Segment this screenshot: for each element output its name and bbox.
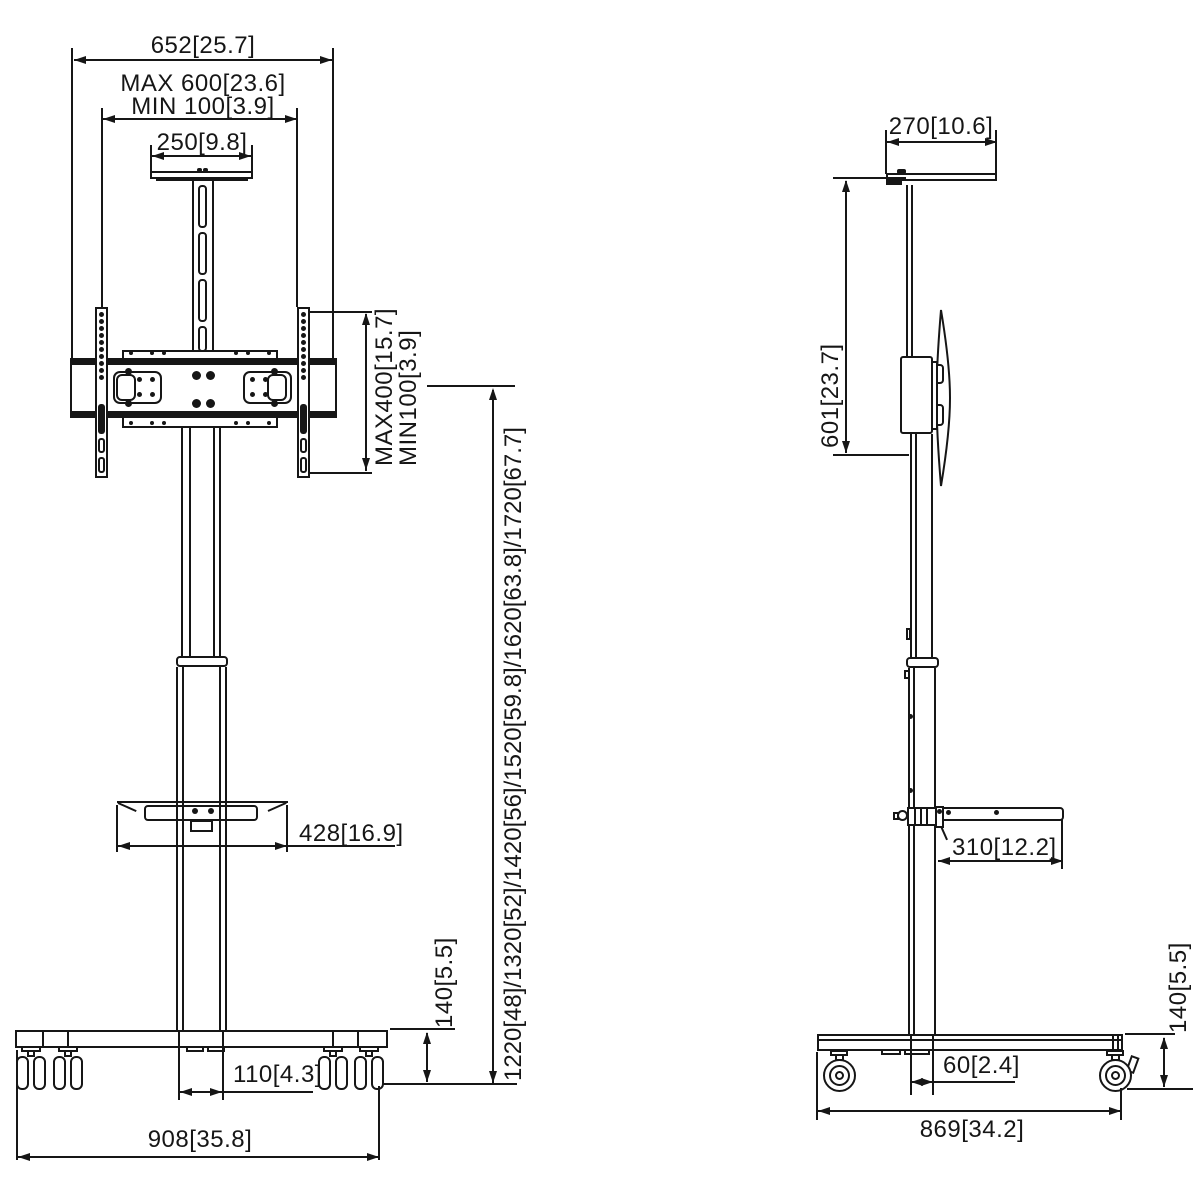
arrowhead-left-icon [74, 56, 86, 64]
column-slot [198, 326, 207, 352]
shelf-clamp-divider [914, 809, 916, 824]
dim-extension-line [1125, 1033, 1175, 1035]
plate-hole [267, 421, 271, 425]
plate-hole [129, 421, 133, 425]
hook-hole [250, 392, 255, 397]
rail-hole [301, 347, 306, 352]
rail-hole [99, 368, 104, 373]
rail-slot-filled [300, 404, 307, 434]
arrowhead-right-icon [1109, 1107, 1121, 1115]
dim-extension-line [427, 385, 515, 387]
arrowhead-right-icon [210, 1088, 222, 1096]
caster-neck [329, 1050, 337, 1057]
plate-corner-hole [125, 400, 132, 407]
dim-line-top-shelf-depth [887, 141, 997, 143]
tv-hook-right [267, 374, 287, 401]
caster-wheel [354, 1056, 367, 1090]
hook-hole [250, 377, 255, 382]
pole-clip [904, 670, 910, 679]
rail-hole [301, 326, 306, 331]
rail-hole [301, 354, 306, 359]
base-side [817, 1034, 1123, 1051]
dim-label-base-width: 908[35.8] [148, 1127, 253, 1153]
rail-hook-side [936, 404, 944, 426]
dim-label-column-width: 110[4.3] [233, 1062, 322, 1088]
rail-hole [99, 319, 104, 324]
arrowhead-right-icon [275, 842, 287, 850]
tv-bracket-side [900, 356, 933, 434]
technical-drawing-canvas: 652[25.7] MAX 600[23.6] MIN 100[3.9] 250… [0, 0, 1200, 1200]
column-pole-line [910, 434, 912, 658]
shelf-clamp-tab [190, 820, 213, 832]
arrowhead-down-icon [362, 458, 370, 470]
rail-hole [301, 361, 306, 366]
plate-hole [234, 351, 238, 355]
arrowhead-left-icon [818, 1107, 830, 1115]
dim-label-base-depth: 869[34.2] [920, 1117, 1025, 1143]
rail-hole [301, 319, 306, 324]
rail-hole [301, 375, 306, 380]
top-shelf-plate [150, 171, 253, 179]
vesa-hole [206, 399, 215, 408]
shelf-top-edge [117, 801, 288, 803]
dim-extension-line [310, 472, 372, 474]
dim-label-base-height: 140[5.5] [432, 937, 458, 1028]
hook-hole [263, 392, 268, 397]
column-tube-line [934, 668, 936, 1034]
rail-slot [300, 457, 307, 473]
dim-line-base-depth [818, 1110, 1121, 1112]
shelf-plate-side [942, 807, 1064, 821]
base-divider [357, 1032, 359, 1046]
rail-hole [99, 361, 104, 366]
rail-slot [300, 438, 307, 453]
column-collar [176, 656, 228, 667]
dim-extension-line [910, 1036, 912, 1095]
dim-extension-line [885, 130, 887, 174]
arrowhead-up-icon [489, 388, 497, 400]
arrowhead-left-icon [180, 1088, 192, 1096]
dim-extension-line [833, 454, 909, 456]
base-end-divider [1117, 1036, 1119, 1049]
column-pole-line [915, 434, 917, 658]
dim-label-base-height-side: 140[5.5] [1166, 942, 1192, 1033]
shelf-clamp-divider [926, 809, 928, 824]
pole-screw [908, 714, 913, 719]
dim-extension-line [101, 108, 103, 307]
rail-hole [301, 333, 306, 338]
dim-label-vesa-height-min: MIN100[3.9] [396, 330, 422, 466]
dim-line-vesa-height [365, 314, 367, 471]
dim-label-shelf-to-screen: 601[23.7] [818, 343, 844, 448]
dim-label-top-shelf-depth: 270[10.6] [889, 114, 994, 140]
caster-wheel [335, 1056, 348, 1090]
arrowhead-left-icon [103, 115, 115, 123]
rail-slot [98, 457, 105, 473]
rail-hole [301, 340, 306, 345]
dim-label-screen-heights: 1220[48]/1320[52]/1420[56]/1520[59.8]/16… [501, 427, 527, 1081]
arrowhead-right-icon [367, 1153, 379, 1161]
shelf-corner-right [268, 802, 287, 812]
column-collar-side [906, 657, 939, 668]
caster-neck [27, 1050, 35, 1057]
dim-label-shelf-width: 428[16.9] [299, 821, 404, 847]
rail-hole [301, 312, 306, 317]
plate-hole [162, 351, 166, 355]
column-tube-line [219, 801, 221, 833]
column-tube-line [908, 668, 910, 1034]
rail-hole [99, 375, 104, 380]
dim-label-vesa-width-min: MIN 100[3.9] [131, 94, 274, 120]
column-tube-line [176, 801, 178, 833]
dim-label-width-total: 652[25.7] [151, 33, 256, 59]
plate-hole [162, 421, 166, 425]
hook-hole [263, 377, 268, 382]
caster-wheel-hub [835, 1071, 844, 1080]
dim-extension-line [1120, 1088, 1122, 1120]
dim-label-shelf-depth: 310[12.2] [952, 835, 1057, 861]
column-pole-line [213, 428, 215, 658]
caster-wheel-hub [1111, 1071, 1120, 1080]
arrowhead-down-icon [423, 1070, 431, 1082]
dim-extension-line [932, 1036, 934, 1095]
dim-extension-line [71, 48, 73, 358]
rail-hole [301, 368, 306, 373]
shelf-screw [994, 810, 999, 815]
column-slot [198, 185, 207, 228]
caster-wheel [53, 1056, 66, 1090]
ground-line [383, 1083, 517, 1085]
plate-hole [150, 421, 154, 425]
column-pole-line [181, 428, 183, 658]
dim-label-top-shelf-width: 250[9.8] [157, 130, 248, 156]
arrowhead-up-icon [842, 180, 850, 192]
top-shelf-lip-side [886, 181, 902, 185]
arrowhead-down-icon [1160, 1075, 1168, 1087]
tv-hook-left [116, 374, 136, 401]
dim-extension-line [390, 1028, 455, 1030]
caster-wheel [33, 1056, 46, 1090]
base-side-inner-line [819, 1039, 1121, 1041]
shelf-screw [946, 810, 951, 815]
plate-hole [246, 351, 250, 355]
arrowhead-left-icon [18, 1153, 30, 1161]
dim-extension-line [251, 145, 253, 172]
column-tube-line [225, 667, 227, 1031]
rail-hook-side [936, 364, 944, 384]
pole-clip [906, 628, 911, 640]
vesa-hole [192, 371, 201, 380]
hook-hole [150, 392, 155, 397]
arrowhead-up-icon [362, 313, 370, 325]
shelf-clamp-side [907, 807, 937, 826]
dim-extension-line [16, 1050, 18, 1160]
caster-neck [365, 1050, 373, 1057]
hook-hole [137, 377, 142, 382]
rail-hole [99, 340, 104, 345]
dim-extension-line [296, 108, 298, 307]
arrowhead-left-icon [118, 842, 130, 850]
plate-hole [129, 351, 133, 355]
rail-hole [99, 354, 104, 359]
column-slot [198, 232, 207, 275]
ground-line [1127, 1088, 1193, 1090]
pole-screw [908, 788, 913, 793]
hook-hole [150, 377, 155, 382]
shelf-corner-left [118, 802, 137, 812]
column-pole-line [219, 428, 221, 658]
caster-neck [64, 1050, 72, 1057]
rail-hole [99, 326, 104, 331]
plate-hole [267, 351, 271, 355]
column-pole-line [931, 434, 933, 658]
rail-hole [99, 312, 104, 317]
rail-hole [99, 333, 104, 338]
arrowhead-down-icon [489, 1071, 497, 1083]
base-divider [67, 1032, 69, 1046]
rail-hole [99, 347, 104, 352]
plate-hole [234, 421, 238, 425]
dim-line-shelf-to-screen [845, 181, 847, 453]
rail-slot-filled [98, 404, 105, 434]
dim-extension-line [178, 1030, 180, 1100]
base-divider [332, 1032, 334, 1046]
caster-wheel [70, 1056, 83, 1090]
arrowhead-right-icon [285, 115, 297, 123]
shelf-clamp-divider [920, 809, 922, 824]
column-tube-line [182, 667, 184, 1031]
vesa-hole [192, 399, 201, 408]
dim-line-base-width [18, 1156, 379, 1158]
plate-hole [150, 351, 154, 355]
plate-hole [246, 421, 250, 425]
column-tube-line [176, 667, 178, 1031]
dim-extension-line [222, 1030, 224, 1100]
column-tube-line [182, 801, 184, 833]
dim-extension-line [833, 177, 906, 179]
arrowhead-up-icon [1160, 1037, 1168, 1049]
hook-hole [137, 392, 142, 397]
arrowhead-right-icon [320, 56, 332, 64]
column-tube-line [225, 801, 227, 833]
plate-corner-hole [271, 400, 278, 407]
dim-line-column-width [180, 1091, 313, 1093]
dim-extension-line [378, 1086, 380, 1160]
base-end-divider [1112, 1036, 1114, 1049]
dim-line-screen-heights [492, 390, 494, 1083]
vesa-hole [206, 371, 215, 380]
column-pole-line [189, 428, 191, 658]
rod-line [906, 185, 908, 356]
column-tube-line [219, 667, 221, 1031]
rail-slot [98, 438, 105, 453]
shelf-body [144, 805, 258, 821]
rod-line [911, 185, 913, 356]
base-divider [42, 1032, 44, 1046]
arrowhead-up-icon [423, 1032, 431, 1044]
shelf-screw [937, 809, 942, 814]
shelf-screw [208, 808, 214, 814]
column-slot [198, 279, 207, 322]
arrowhead-left-icon [938, 857, 950, 865]
shelf-screw [192, 808, 198, 814]
dim-label-column-depth: 60[2.4] [943, 1053, 1020, 1079]
column-tube-line [913, 668, 915, 1034]
